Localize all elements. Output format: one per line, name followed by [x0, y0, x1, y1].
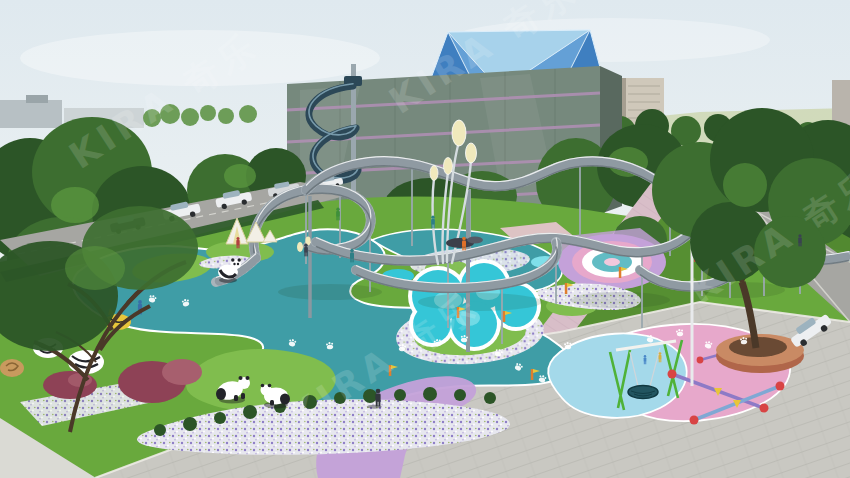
playground-rendering: KIRA 奇乐 KIRA 奇乐 KIRA 奇乐 KIRA 奇乐: [0, 0, 850, 478]
lamp-bulb: [466, 143, 477, 163]
red-shrub-highlight: [68, 373, 92, 387]
lamp-bulb-small: [297, 242, 303, 252]
red-shrub: [43, 371, 97, 399]
distant-building-left: [0, 100, 62, 128]
distant-building-roof: [26, 95, 48, 103]
play-car-sculpture: [467, 237, 483, 244]
lamp-bulb: [444, 158, 453, 175]
lamp-bulb: [452, 120, 466, 146]
shell-sculpture: [0, 359, 24, 377]
lamp-bulb: [430, 166, 438, 181]
rendering-canvas: KIRA 奇乐 KIRA 奇乐 KIRA 奇乐 KIRA 奇乐: [0, 0, 850, 478]
